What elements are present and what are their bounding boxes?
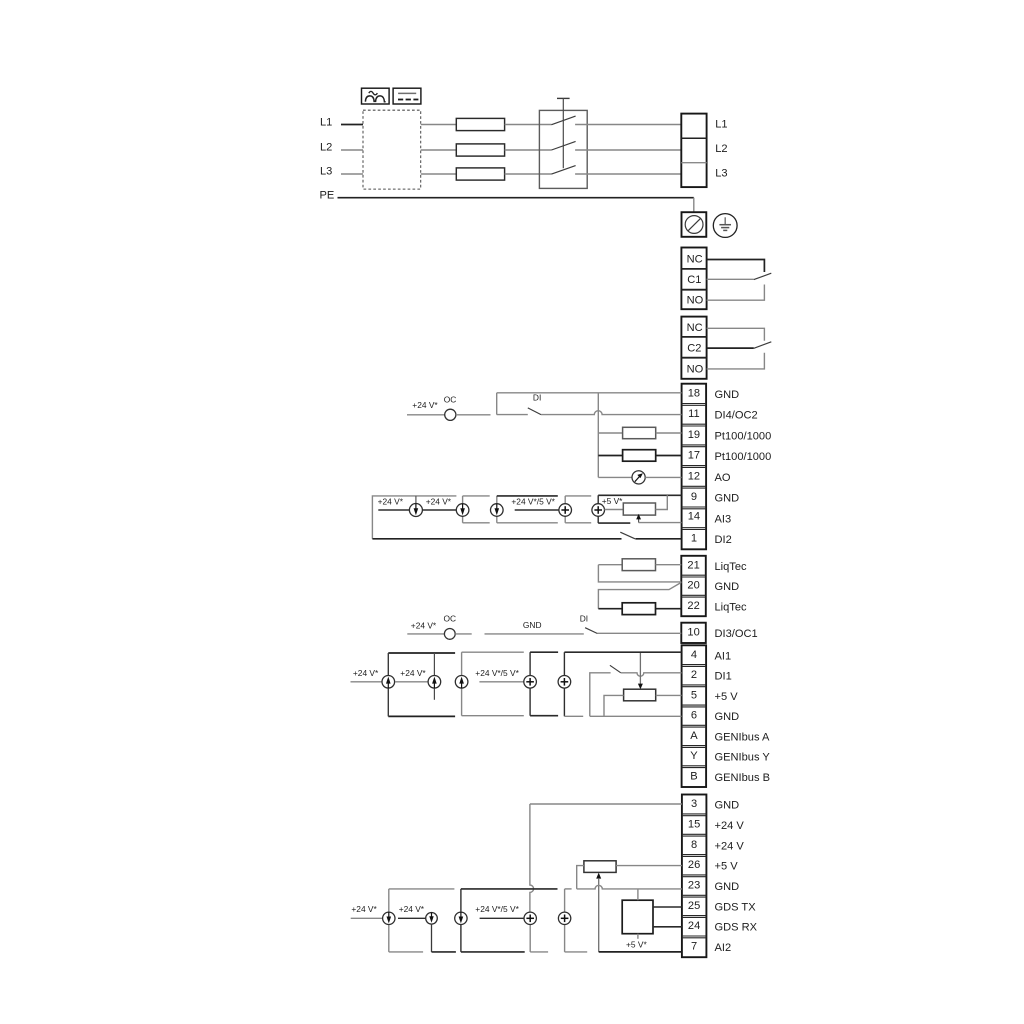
svg-text:L2: L2	[320, 141, 332, 153]
svg-text:AI2: AI2	[715, 942, 732, 954]
svg-text:+24 V*/5 V*: +24 V*/5 V*	[511, 497, 555, 507]
svg-text:1: 1	[691, 532, 697, 544]
svg-text:GND: GND	[523, 620, 542, 630]
svg-text:GND: GND	[715, 389, 740, 401]
svg-text:AI3: AI3	[715, 513, 732, 525]
svg-text:PE: PE	[320, 190, 335, 202]
svg-text:15: 15	[688, 819, 700, 831]
svg-text:NC: NC	[687, 254, 703, 266]
svg-text:10: 10	[687, 627, 699, 639]
svg-text:OC: OC	[444, 395, 457, 405]
svg-text:LiqTec: LiqTec	[715, 561, 748, 573]
svg-text:26: 26	[688, 859, 700, 871]
svg-text:5: 5	[691, 689, 697, 701]
svg-text:9: 9	[691, 491, 697, 503]
svg-text:+24 V*: +24 V*	[399, 904, 425, 914]
svg-text:L2: L2	[715, 143, 727, 155]
svg-text:24: 24	[688, 920, 700, 932]
svg-text:+24 V*/5 V*: +24 V*/5 V*	[475, 668, 519, 678]
svg-text:+24 V*: +24 V*	[411, 620, 437, 630]
svg-text:11: 11	[688, 408, 700, 420]
svg-text:GDS TX: GDS TX	[715, 901, 757, 913]
svg-text:OC: OC	[444, 614, 457, 624]
svg-text:Pt100/1000: Pt100/1000	[715, 451, 772, 463]
svg-text:12: 12	[688, 470, 700, 482]
svg-text:17: 17	[688, 450, 700, 462]
svg-text:22: 22	[687, 600, 699, 612]
svg-text:L3: L3	[320, 166, 332, 178]
svg-text:L1: L1	[715, 119, 727, 131]
svg-text:DI: DI	[533, 392, 541, 402]
svg-text:+24 V*: +24 V*	[378, 497, 404, 507]
svg-text:+24 V*: +24 V*	[400, 668, 426, 678]
svg-text:8: 8	[691, 839, 697, 851]
svg-text:C2: C2	[687, 343, 701, 355]
svg-text:NO: NO	[687, 295, 704, 307]
svg-text:20: 20	[687, 580, 699, 592]
svg-text:7: 7	[691, 941, 697, 953]
svg-text:GND: GND	[715, 881, 740, 893]
svg-text:4: 4	[691, 649, 697, 661]
svg-text:+5 V: +5 V	[715, 691, 739, 703]
svg-text:18: 18	[688, 388, 700, 400]
svg-text:23: 23	[688, 880, 700, 892]
svg-text:3: 3	[691, 798, 697, 810]
svg-text:DI2: DI2	[715, 534, 732, 546]
svg-text:+24 V*/5 V*: +24 V*/5 V*	[475, 904, 519, 914]
svg-text:GND: GND	[715, 581, 740, 593]
svg-text:GND: GND	[715, 800, 740, 812]
svg-text:+5 V: +5 V	[715, 861, 739, 873]
svg-text:DI4/OC2: DI4/OC2	[715, 410, 758, 422]
svg-text:+24 V: +24 V	[715, 840, 745, 852]
svg-text:GENIbus B: GENIbus B	[715, 772, 771, 784]
svg-text:25: 25	[688, 900, 700, 912]
svg-text:+24 V*: +24 V*	[351, 904, 377, 914]
svg-text:B: B	[690, 770, 697, 782]
svg-text:Pt100/1000: Pt100/1000	[715, 430, 772, 442]
svg-text:21: 21	[687, 560, 699, 572]
svg-text:C1: C1	[687, 274, 701, 286]
svg-text:+24 V*: +24 V*	[353, 668, 379, 678]
svg-text:+5 V*: +5 V*	[626, 939, 647, 949]
svg-text:+5 V*: +5 V*	[602, 496, 623, 506]
svg-text:LiqTec: LiqTec	[715, 601, 748, 613]
svg-text:AI1: AI1	[715, 650, 732, 662]
svg-text:Y: Y	[690, 750, 698, 762]
svg-text:GENIbus Y: GENIbus Y	[715, 752, 771, 764]
svg-text:NC: NC	[687, 322, 703, 334]
svg-text:+24 V: +24 V	[715, 820, 745, 832]
svg-text:AO: AO	[715, 472, 731, 484]
svg-text:DI1: DI1	[715, 671, 732, 683]
svg-text:19: 19	[688, 429, 700, 441]
svg-text:NO: NO	[687, 364, 704, 376]
svg-text:+24 V*: +24 V*	[426, 497, 452, 507]
svg-text:2: 2	[691, 669, 697, 681]
svg-text:14: 14	[688, 511, 700, 523]
svg-text:GND: GND	[715, 493, 740, 505]
svg-text:GDS RX: GDS RX	[715, 922, 758, 934]
svg-text:A: A	[690, 730, 698, 742]
svg-text:GND: GND	[715, 711, 740, 723]
svg-text:L1: L1	[320, 116, 332, 128]
svg-text:+24 V*: +24 V*	[412, 400, 438, 410]
svg-text:DI: DI	[580, 614, 588, 624]
svg-text:6: 6	[691, 710, 697, 722]
svg-text:L3: L3	[715, 168, 727, 180]
svg-text:GENIbus A: GENIbus A	[715, 731, 770, 743]
svg-text:DI3/OC1: DI3/OC1	[715, 628, 758, 640]
